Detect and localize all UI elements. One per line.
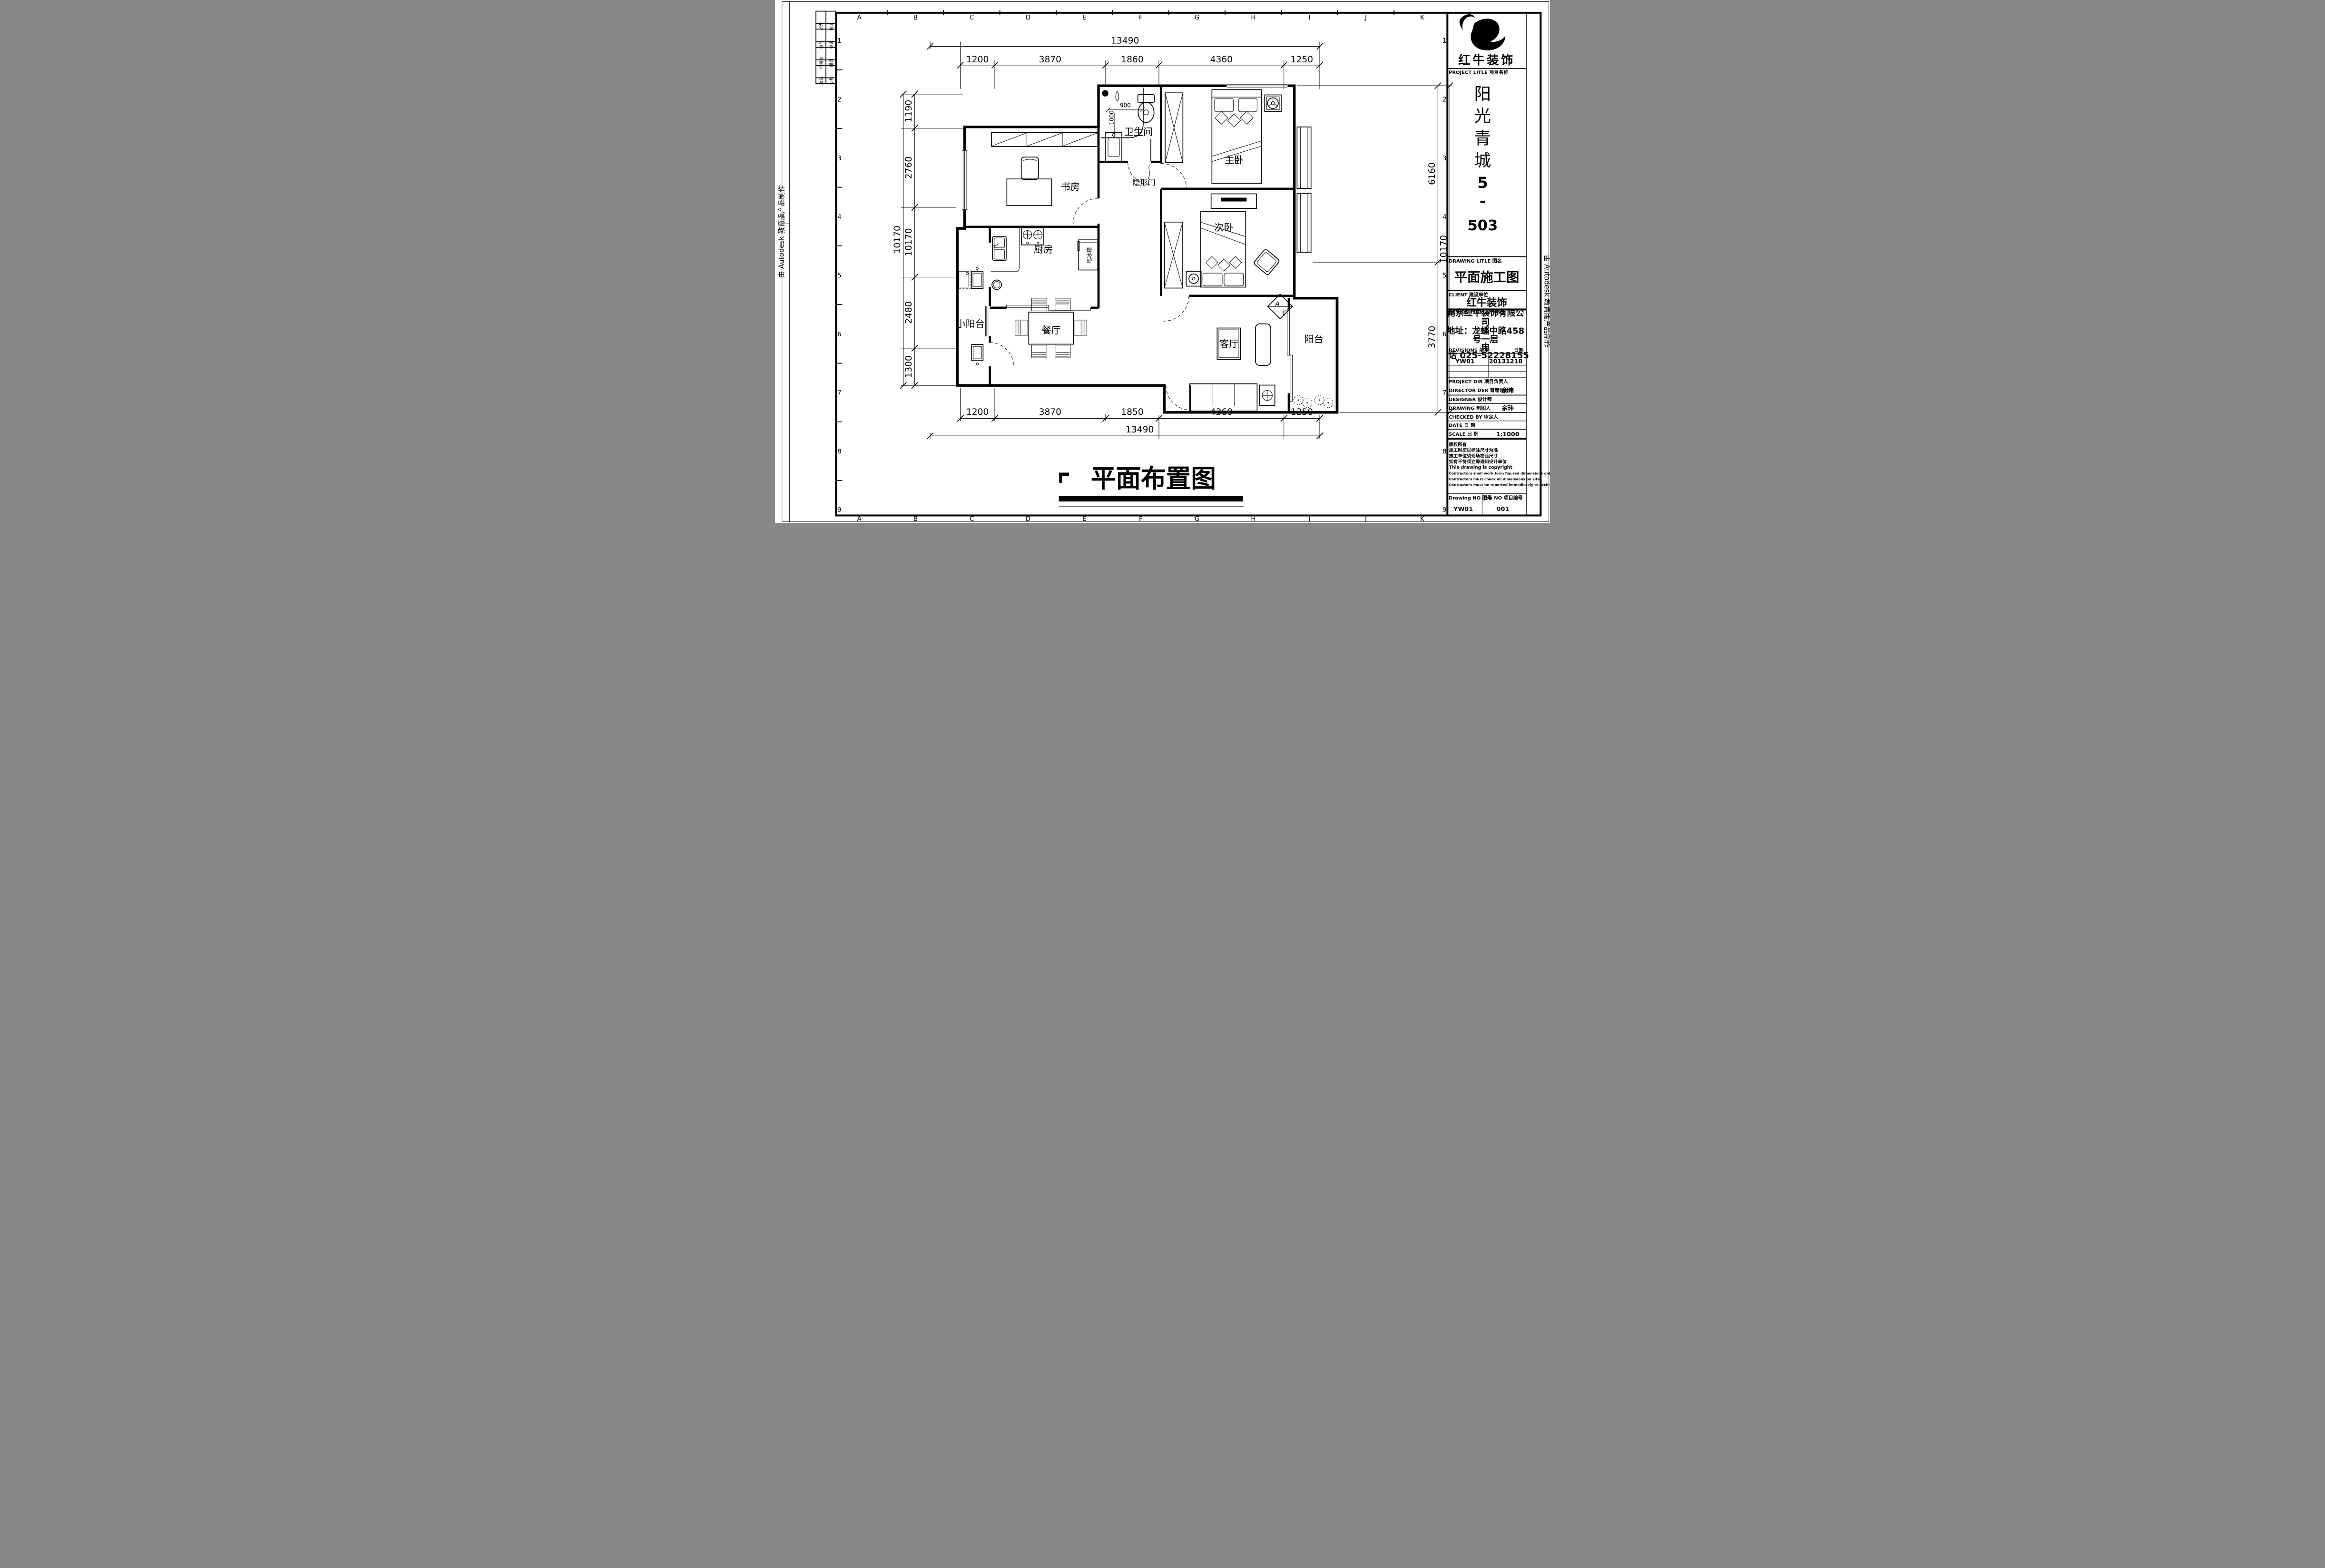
client-name: 红牛装饰 (1466, 297, 1507, 309)
dim-seg: 3770 (1427, 326, 1437, 348)
project-name-char: 光 (1474, 107, 1491, 126)
project-name: 阳 光 青 城 5 - 503 (1467, 85, 1498, 235)
kitchen-sink (992, 236, 1006, 261)
ac-label-c: C (1282, 310, 1287, 317)
armchair (1253, 249, 1280, 275)
grid-letter: E (1082, 516, 1086, 523)
dim-seg: 3870 (1039, 407, 1061, 417)
small-balcony-fixtures (958, 267, 1001, 365)
number-block: Drawing NO 图号 Job NO 项目编号 YW01 001 (1449, 495, 1523, 512)
dim-seg: 1250 (1291, 407, 1313, 417)
room-label-master: 主卧 (1225, 154, 1244, 166)
dim-seg: 1300 (904, 355, 914, 378)
grid-letter: I (1309, 516, 1311, 523)
staff-label: PROJECT DIR 项目负责人 (1449, 379, 1509, 385)
room-label-bathroom: 卫生间 (1124, 126, 1153, 137)
dim-seg: 2480 (904, 301, 914, 323)
balcony-plants (1294, 395, 1333, 408)
revision-no: YW01 (1455, 358, 1475, 365)
grid-letter: G (1195, 516, 1199, 523)
grid-numbers-left: 1 2 3 4 5 6 7 8 9 (836, 38, 842, 514)
project-name-char: 阳 (1474, 85, 1491, 104)
copyright-line: Contractors must check all dimensions on… (1449, 477, 1540, 481)
sheet-title: 平面布置图 (1091, 464, 1216, 493)
master-furniture (1165, 90, 1281, 209)
firm-line: 司 (1481, 317, 1490, 327)
tv (1221, 198, 1246, 202)
copyright-line: 如有不符须立即通知设计单位 (1449, 459, 1507, 465)
grid-letter: B (913, 516, 918, 523)
grid-number: 9 (1442, 507, 1446, 514)
staff-label: DRAWING 制图人 (1449, 405, 1491, 412)
grid-letter: J (1364, 14, 1367, 21)
grid-letter: F (1139, 516, 1143, 523)
room-label-small-balcony: 小阳台 (956, 318, 985, 330)
dim-left: 1190 2760 10170 2480 1300 10170 (893, 91, 963, 389)
grid-number: 5 (837, 273, 841, 280)
grid-letter: I (1309, 14, 1311, 21)
footer: 平面布置图 (1059, 464, 1244, 506)
copyright-line: 施工时须以标注尺寸为准 (1449, 448, 1498, 453)
grid-number: 8 (837, 449, 841, 456)
shower-head-icon (1102, 90, 1108, 97)
dim-right: 6160 3770 10170 (1297, 83, 1453, 416)
copyright-line: Contractors shall work form figured dime… (1449, 471, 1550, 476)
project-name-char: - (1480, 192, 1486, 210)
dim-seg: 1190 (904, 100, 914, 122)
copyright-line: 施工单位须现场校验尺寸 (1449, 453, 1498, 459)
grid-number: 9 (837, 507, 841, 514)
dim-seg: 1850 (1121, 407, 1143, 417)
grid-letter: B (913, 14, 918, 21)
discipline-label: 电气 (819, 40, 824, 49)
dim-seg: 10170 (904, 228, 914, 256)
ceiling-fan-icon (1265, 95, 1281, 112)
grid-letter: H (1251, 14, 1256, 21)
staff-label: SCALE 比 例 (1449, 431, 1478, 437)
grid-number: 6 (1442, 331, 1446, 338)
staff-rows: PROJECT DIR 项目负责人 DIRECTOR DER 首席设计师 余玮 … (1449, 379, 1520, 438)
staff-value-scale: 1:1000 (1496, 431, 1519, 438)
grid-numbers-right: 1 2 3 4 5 6 7 8 9 (1442, 38, 1446, 514)
grid-letter: D (1026, 14, 1030, 21)
discipline-label: 校工 (828, 22, 834, 31)
grid-letter: K (1420, 14, 1425, 21)
copyright-line: This drawing is copyright (1449, 465, 1513, 470)
stove (1021, 228, 1044, 245)
grid-number: 8 (1442, 449, 1446, 456)
dim-total: 10170 (893, 225, 903, 254)
project-name-char: 青 (1474, 129, 1491, 148)
project-label: PROJECT LITLE 项目名称 (1449, 69, 1508, 76)
dim-total: 13490 (1126, 425, 1154, 435)
discipline-label: 给排水 (819, 57, 824, 69)
discipline-label: 建筑 (819, 77, 824, 85)
grid-letter: K (1420, 516, 1425, 523)
dim-seg: 1860 (1121, 55, 1143, 65)
grid-number: 5 (1442, 273, 1446, 280)
dim-seg: 2760 (904, 157, 914, 179)
room-label-kitchen: 厨房 (1034, 244, 1053, 255)
grid-letter: G (1195, 14, 1199, 21)
grid-number: 7 (837, 390, 841, 397)
discipline-table: 动力 校工 电气 电讯 给排水 暖通 建筑 结构 (816, 11, 836, 85)
company-logo (1460, 14, 1506, 50)
tv-console (1256, 324, 1271, 365)
room-labels: 书房 厨房 小阳台 餐厅 卫生间 主卧 次卧 客厅 阳台 隐形门 (956, 126, 1324, 349)
client-label: CLIENT 建设单位 (1449, 292, 1488, 298)
grid-number: 2 (837, 97, 841, 104)
dim-seg: 1250 (1291, 55, 1313, 65)
drawing-no: YW01 (1453, 505, 1473, 512)
dim-shower-width: 900 (1120, 102, 1131, 109)
drawing-sheet: A B C D E F G H I J K A B C D E F G H I … (775, 0, 1550, 523)
dim-seg: 3870 (1039, 55, 1061, 65)
sheet-borders (782, 2, 1549, 522)
grid-letters-top: A B C D E F G H I J K (857, 10, 1425, 21)
copyright-block: 版权所有 施工时须以标注尺寸为准 施工单位须现场校验尺寸 如有不符须立即通知设计… (1449, 442, 1550, 487)
discipline-label: 电讯 (828, 40, 834, 49)
ac-unit: A C (1268, 294, 1293, 319)
room-label-second: 次卧 (1214, 222, 1233, 233)
sliding-door-kitchen (1007, 305, 1091, 311)
room-label-dining: 餐厅 (1042, 324, 1061, 336)
dim-top: 13490 1200 3870 1860 4360 1250 (927, 36, 1323, 89)
bay-window-master (1297, 127, 1311, 188)
revision-date: 20131218 (1489, 358, 1523, 365)
brand-name: 红牛装饰 (1458, 53, 1515, 67)
grid-number: 6 (837, 331, 841, 338)
grid-number: 3 (1442, 155, 1446, 162)
dim-total: 13490 (1111, 36, 1139, 46)
sliding-door-balcony (1287, 309, 1293, 401)
room-label-balcony: 阳台 (1305, 333, 1324, 345)
ac-label-a: A (1275, 301, 1280, 308)
grid-letter: E (1082, 14, 1086, 21)
copyright-line: Contractors must be reported immediately… (1449, 483, 1550, 487)
grid-letter: A (857, 516, 861, 523)
annotation-hidden-door: 隐形门 (1132, 178, 1155, 187)
bathroom-fixtures: 900 1000 (1101, 88, 1154, 161)
dim-seg: 4360 (1210, 55, 1233, 65)
grid-letter: A (857, 14, 861, 21)
grid-letter: H (1251, 516, 1256, 523)
grid-number: 2 (1442, 97, 1446, 104)
staff-value: 余玮 (1501, 404, 1514, 412)
project-name-char: 5 (1477, 174, 1488, 192)
dimension-chains: 13490 1200 3870 1860 4360 1250 1200 3870… (893, 36, 1453, 439)
grid-letter: D (1026, 516, 1030, 523)
dim-total: 10170 (1439, 235, 1449, 263)
project-name-char: 503 (1467, 217, 1498, 234)
staff-label: CHECKED BY 审定人 (1449, 414, 1499, 420)
cad-canvas: A B C D E F G H I J K A B C D E F G H I … (775, 0, 1550, 523)
drawing-title: 平面施工图 (1454, 270, 1520, 285)
sofa (1190, 384, 1257, 411)
fridge-label: 电冰箱 (1086, 247, 1093, 264)
room-label-living: 客厅 (1219, 338, 1238, 350)
grid-letter: C (970, 516, 974, 523)
bay-window-second (1297, 193, 1311, 252)
fridge: 电冰箱 (1078, 240, 1098, 270)
autodesk-watermark-left: 由 Autodesk 教育版产品制作 (777, 185, 785, 278)
living-furniture (1190, 324, 1275, 411)
grid-letter: J (1364, 516, 1367, 523)
dim-seg: 4360 (1210, 407, 1233, 417)
grid-number: 1 (1442, 38, 1446, 45)
autodesk-watermark-right: 由 Autodesk 教育版产品制作 (1543, 255, 1550, 348)
revisions-label: REVISIONS 版本 (1449, 347, 1489, 353)
staff-label: DESIGNER 设计师 (1449, 396, 1492, 402)
date-label: 日期 (1514, 347, 1523, 353)
firm-line: 南京红牛装饰有限公 (1447, 308, 1524, 318)
staff-value: 余玮 (1501, 387, 1514, 394)
grid-number: 7 (1442, 390, 1446, 397)
discipline-label: 暖通 (829, 59, 834, 67)
job-no: 001 (1497, 505, 1509, 512)
project-name-char: 城 (1474, 151, 1491, 171)
study-furniture (991, 133, 1098, 206)
grid-letter: C (970, 14, 974, 21)
bed (1212, 90, 1261, 184)
toilet-tank (1138, 95, 1155, 103)
grid-number: 4 (837, 214, 841, 221)
discipline-label: 动力 (819, 22, 824, 30)
dim-seg: 1200 (966, 407, 989, 417)
copyright-line: 版权所有 (1449, 442, 1467, 448)
floor-plan: 900 1000 (956, 84, 1337, 412)
staff-label: DATE 日 期 (1449, 422, 1475, 429)
grid-number: 1 (837, 38, 841, 45)
grid-number: 4 (1442, 214, 1446, 221)
drawing-title-label: DRAWING LITLE 图名 (1449, 258, 1502, 264)
discipline-label: 结构 (828, 77, 834, 85)
ceiling-fan-icon (1186, 271, 1201, 286)
dim-seg: 1200 (966, 55, 989, 65)
job-no-label: Job NO 项目编号 (1483, 495, 1523, 501)
title-block: 红牛装饰 PROJECT LITLE 项目名称 阳 光 青 城 5 - 503 … (1447, 14, 1550, 516)
desk (1007, 179, 1051, 206)
grid-number: 3 (837, 155, 841, 162)
dim-shower-depth: 1000 (1108, 110, 1115, 125)
grid-letter: F (1139, 14, 1143, 21)
dim-seg: 6160 (1427, 162, 1437, 185)
room-label-study: 书房 (1061, 181, 1080, 193)
toilet-bowl (1138, 102, 1154, 123)
